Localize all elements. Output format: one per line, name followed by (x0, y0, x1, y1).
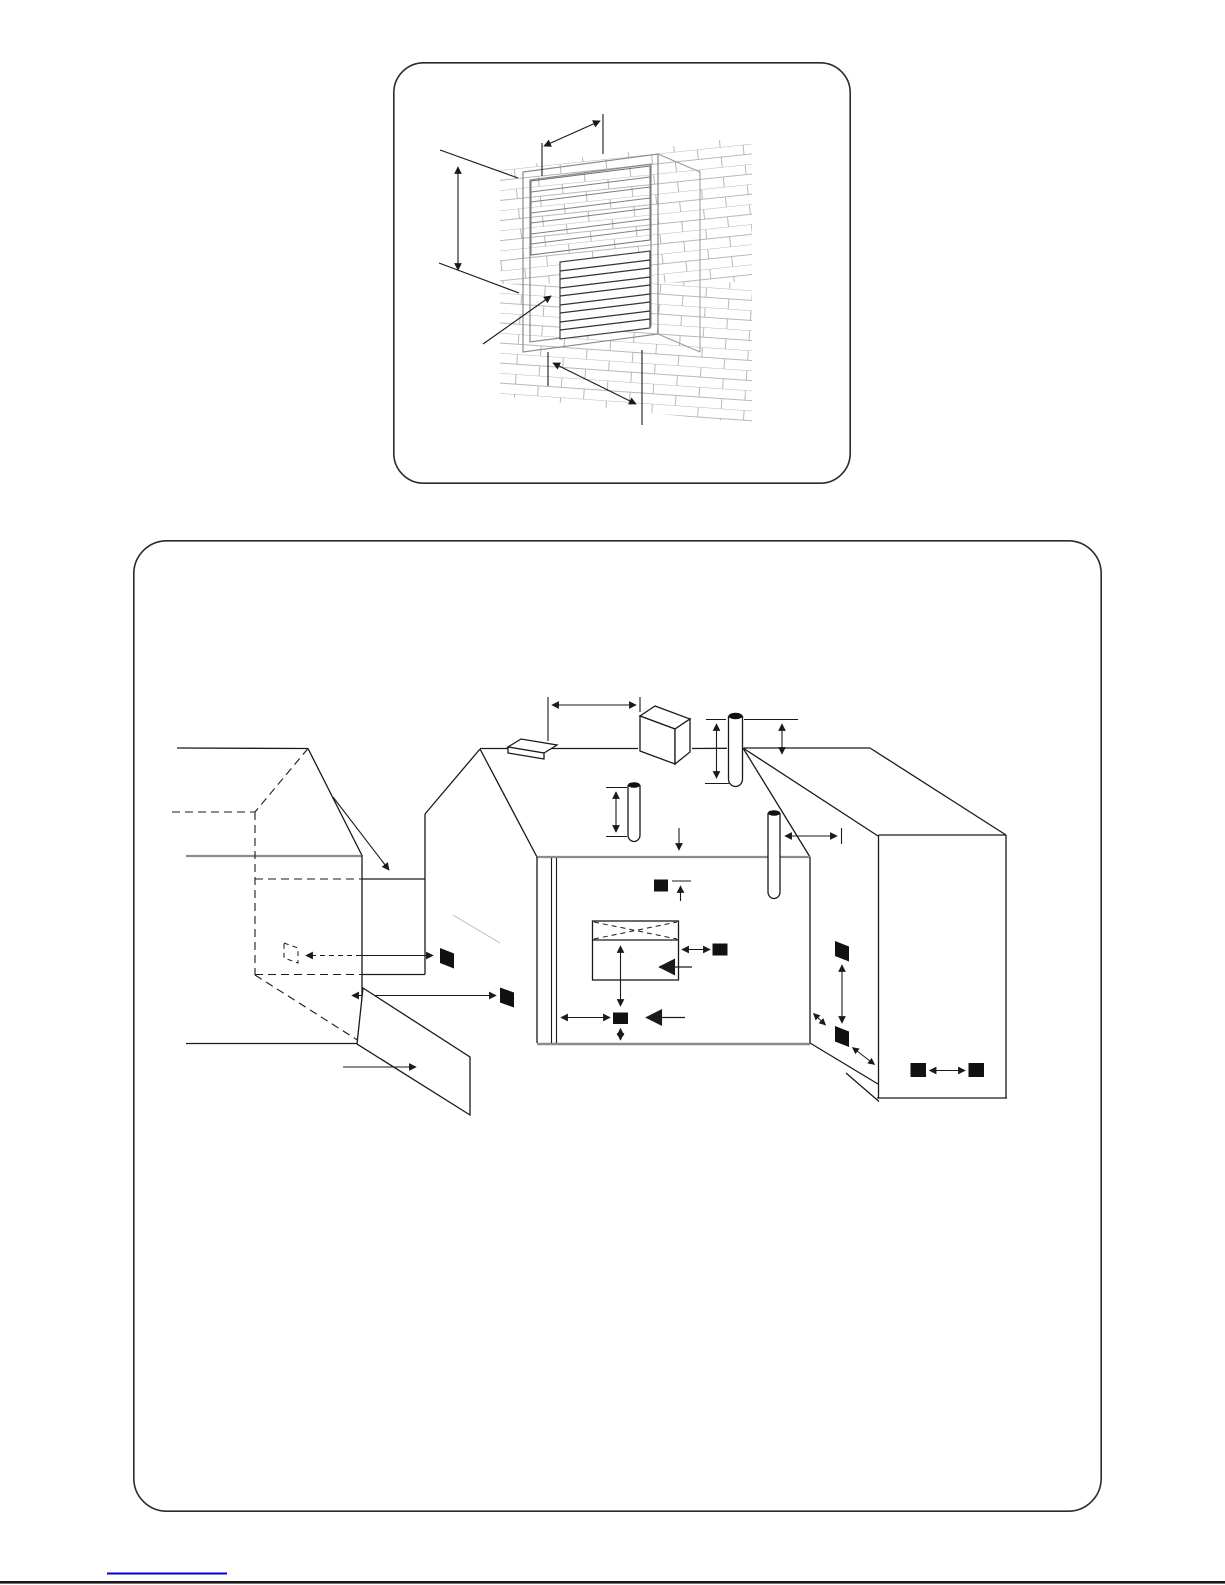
flue-pipe-cap (768, 810, 780, 816)
figure2-panel-border (134, 541, 1101, 1511)
window (593, 921, 679, 980)
page-bottom-rule (0, 1581, 1225, 1584)
flue-pipe (768, 813, 780, 899)
louvre-block-lower (560, 251, 650, 339)
wall-grille-figure (390, 60, 854, 488)
terminal-facing-left (911, 1063, 927, 1077)
terminal-facing-right (969, 1063, 985, 1077)
page-footer (0, 1560, 1225, 1585)
flue-pipe-cap (628, 782, 640, 788)
left-building-ridge (177, 748, 308, 749)
louvre-frame (560, 251, 650, 339)
terminal-above-ground (613, 1013, 628, 1025)
document-page (0, 0, 1225, 1585)
terminal-below-eaves (654, 880, 668, 892)
flue-pipe (729, 716, 743, 787)
flue-pipe (628, 785, 640, 842)
flue-pipe-cap (729, 713, 743, 719)
footer-link-rule[interactable] (107, 1573, 227, 1575)
terminal-positions-figure (130, 537, 1105, 1515)
terminal-beside-window (713, 944, 728, 956)
